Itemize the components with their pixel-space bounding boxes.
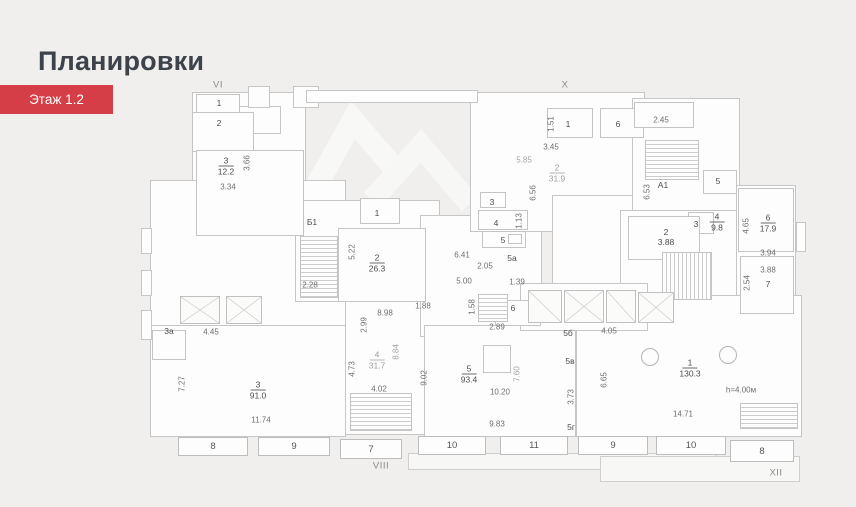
stairs-symbol — [740, 403, 798, 429]
dimension-label: 3.88 — [760, 266, 776, 275]
room-outline — [360, 198, 400, 224]
room-number-label: 1 — [217, 98, 222, 108]
elevator-shaft — [180, 296, 220, 324]
room-area-label: 391.0 — [250, 380, 267, 401]
plan-block — [306, 90, 478, 103]
room-number: 3 — [219, 156, 234, 167]
elevator-shaft — [528, 290, 562, 323]
room-number-label: 1 — [566, 119, 571, 129]
stairs-symbol — [645, 140, 699, 180]
room-area-label: 1130.3 — [679, 358, 700, 379]
floorplans-section: Планировки Этаж 1.2 3.663.345.222.281.51… — [0, 0, 856, 507]
room-area-value: 130.3 — [679, 369, 700, 379]
room-number-label: 6 — [511, 303, 516, 313]
dimension-label: 3.45 — [543, 143, 559, 152]
axis-label: VI — [213, 80, 223, 91]
dimension-label: 14.71 — [673, 410, 693, 419]
dimension-label: 2.45 — [653, 116, 669, 125]
room-outline — [483, 345, 511, 373]
axis-label: XII — [769, 468, 782, 479]
room-number-label: 2 — [217, 118, 222, 128]
plan-block — [141, 310, 152, 340]
plan-block — [248, 86, 270, 108]
dimension-label: 10.20 — [490, 388, 510, 397]
dimension-label: 6.41 — [454, 251, 470, 260]
plan-block — [141, 270, 152, 296]
room-number: 3 — [251, 380, 266, 391]
window-bay: 9 — [578, 436, 648, 455]
room-number-label: 1 — [375, 208, 380, 218]
dimension-label: 2.99 — [360, 317, 369, 333]
room-area-value: 3.88 — [658, 237, 675, 247]
dimension-label: 1.88 — [415, 302, 431, 311]
dimension-label: 1.13 — [515, 213, 524, 229]
elevator-shaft — [606, 290, 636, 323]
room-area-label: 231.9 — [549, 163, 566, 184]
dimension-label: h=4.00м — [726, 386, 756, 395]
room-area-value: 31.7 — [369, 361, 386, 371]
room-area-value: 9.8 — [710, 223, 725, 233]
room-number-label: 5 — [716, 176, 721, 186]
room-area-label: 593.4 — [461, 364, 478, 385]
room-number: 2 — [550, 163, 565, 174]
dimension-label: 2.28 — [302, 281, 318, 290]
stairs-symbol — [350, 393, 412, 431]
dimension-label: 9.02 — [420, 370, 429, 386]
dimension-label: 4.73 — [348, 361, 357, 377]
dimension-label: 8.98 — [377, 309, 393, 318]
room-area-label: 312.2 — [218, 156, 235, 177]
elevator-shaft — [226, 296, 262, 324]
dimension-label: 2.89 — [489, 323, 505, 332]
room-outline — [508, 234, 522, 244]
room-area-label: 226.3 — [369, 253, 386, 274]
room-number-label: 3а — [164, 326, 173, 336]
elevator-shaft — [564, 290, 604, 323]
dimension-label: 4.45 — [203, 328, 219, 337]
room-number-label: 5 — [501, 235, 506, 245]
room-number: 1 — [683, 358, 698, 369]
room-number: 5 — [462, 364, 477, 375]
dimension-label: 6.53 — [643, 184, 652, 200]
dimension-label: 4.05 — [601, 327, 617, 336]
room-area-label: 617.9 — [760, 213, 777, 234]
dimension-label: 5.85 — [516, 156, 532, 165]
room-number-label: 3 — [490, 197, 495, 207]
plan-block — [796, 222, 806, 252]
room-number-label: 5б — [563, 328, 573, 338]
dimension-label: 6.56 — [529, 185, 538, 201]
room-area-value: 93.4 — [461, 375, 478, 385]
dimension-label: 3.94 — [760, 249, 776, 258]
room-number: 4 — [710, 212, 725, 223]
dimension-label: 5.22 — [348, 244, 357, 260]
room-number-label: 7 — [766, 279, 771, 289]
dimension-label: 8.84 — [392, 344, 401, 360]
dimension-label: 4.65 — [742, 218, 751, 234]
dimension-label: 2.05 — [477, 262, 493, 271]
window-bay: 7 — [340, 439, 402, 459]
room-number-label: А1 — [658, 180, 668, 190]
room-area-value: 26.3 — [369, 264, 386, 274]
dimension-label: 6.65 — [600, 372, 609, 388]
dimension-label: 5.00 — [456, 277, 472, 286]
room-number-label: 3 — [694, 219, 699, 229]
dimension-label: 11.74 — [251, 416, 270, 425]
window-bay: 8 — [730, 440, 794, 462]
dimension-label: 7.60 — [513, 366, 522, 382]
dimension-label: 3.34 — [220, 183, 236, 192]
room-number: 2 — [370, 253, 385, 264]
room-outline — [192, 112, 254, 152]
dimension-label: 3.73 — [567, 389, 576, 405]
room-number-label: 5г — [567, 422, 575, 432]
room-number-label: Б1 — [307, 217, 317, 227]
dimension-label: 1.51 — [547, 116, 556, 132]
window-bay: 9 — [258, 437, 330, 456]
stairs-symbol — [478, 294, 508, 322]
room-number-label: 5а — [507, 253, 516, 263]
dimension-label: 2.54 — [743, 275, 752, 291]
axis-label: VIII — [373, 461, 389, 472]
window-bay: 11 — [500, 436, 568, 455]
room-number-label: 4 — [494, 218, 499, 228]
room-number: 6 — [761, 213, 776, 224]
dimension-label: 4.02 — [371, 385, 387, 394]
room-area-value: 12.2 — [218, 167, 235, 177]
dimension-label: 7.27 — [178, 376, 187, 392]
dimension-label: 9.83 — [489, 420, 505, 429]
dimension-label: 3.66 — [243, 155, 252, 171]
room-area-label: 23.88 — [658, 227, 675, 247]
room-area-value: 31.9 — [549, 174, 566, 184]
room-area-label: 431.7 — [369, 350, 386, 371]
room-area-label: 49.8 — [710, 212, 725, 233]
room-number-label: 5в — [565, 356, 574, 366]
axis-label: X — [562, 80, 569, 91]
window-bay: 10 — [418, 436, 486, 455]
window-bay: 10 — [656, 436, 726, 455]
room-area-value: 17.9 — [760, 224, 777, 234]
room-number-label: 6 — [616, 119, 621, 129]
room-number: 4 — [370, 350, 385, 361]
elevator-shaft — [638, 292, 674, 323]
dimension-label: 1.58 — [468, 299, 477, 315]
room-number: 2 — [664, 227, 669, 237]
window-bay: 8 — [178, 437, 248, 456]
column-symbol — [719, 346, 737, 364]
dimension-label: 1.39 — [509, 278, 525, 287]
room-area-value: 91.0 — [250, 391, 267, 401]
floor-plan: 3.663.345.222.281.513.455.856.561.132.45… — [0, 0, 856, 507]
plan-block — [141, 228, 152, 254]
column-symbol — [641, 348, 659, 366]
